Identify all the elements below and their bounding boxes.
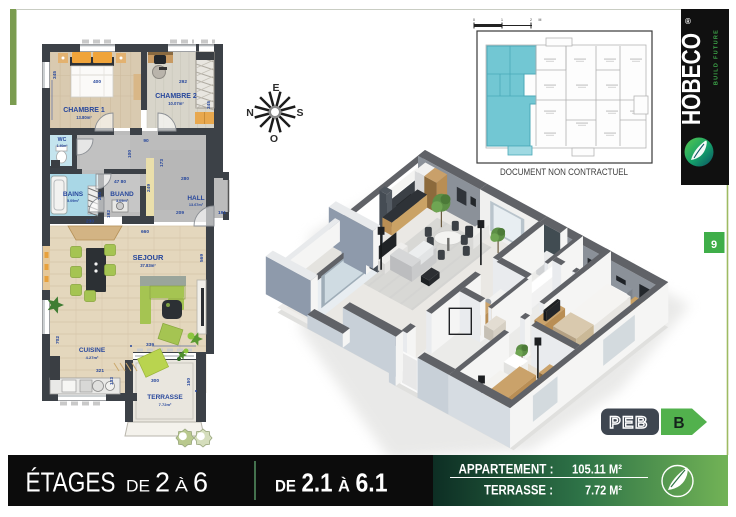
svg-text:TERRASSE :: TERRASSE : <box>484 483 553 498</box>
svg-text:S: S <box>296 107 303 119</box>
svg-text:660: 660 <box>141 229 149 235</box>
svg-text:À: À <box>338 477 350 496</box>
svg-text:À: À <box>175 477 189 496</box>
svg-text:E: E <box>272 82 279 94</box>
svg-text:5.09m²: 5.09m² <box>67 199 80 203</box>
svg-text:2.1: 2.1 <box>302 468 333 498</box>
svg-text:6: 6 <box>193 467 208 498</box>
svg-text:345: 345 <box>206 101 212 109</box>
svg-text:300: 300 <box>151 378 159 384</box>
svg-text:PEB: PEB <box>609 413 648 432</box>
svg-text:HALL: HALL <box>187 195 204 202</box>
svg-text:209: 209 <box>176 210 184 216</box>
svg-text:292: 292 <box>179 79 187 85</box>
svg-text:1: 1 <box>501 18 503 22</box>
svg-text:192: 192 <box>106 210 112 218</box>
svg-text:4.27m²: 4.27m² <box>86 355 99 360</box>
svg-text:BUILD FUTURE: BUILD FUTURE <box>714 29 720 85</box>
svg-text:ÉTAGES: ÉTAGES <box>26 467 116 498</box>
svg-text:13.67m²: 13.67m² <box>189 203 204 207</box>
svg-text:3.09m²: 3.09m² <box>116 199 129 203</box>
svg-text:CHAMBRE 2: CHAMBRE 2 <box>155 93 197 100</box>
svg-text:APPARTEMENT :: APPARTEMENT : <box>459 462 554 477</box>
svg-text:DE: DE <box>126 477 150 496</box>
svg-text:M: M <box>539 18 542 22</box>
svg-text:345: 345 <box>52 71 58 79</box>
svg-text:702: 702 <box>55 336 61 344</box>
svg-text:150: 150 <box>186 378 192 386</box>
svg-text:7.72m²: 7.72m² <box>159 402 172 407</box>
svg-text:105.11 M²: 105.11 M² <box>572 462 623 477</box>
svg-text:100: 100 <box>127 150 133 158</box>
svg-text:133: 133 <box>109 377 115 385</box>
svg-text:230: 230 <box>86 219 94 225</box>
svg-text:CUISINE: CUISINE <box>79 347 106 354</box>
svg-text:249: 249 <box>146 184 152 192</box>
svg-text:235: 235 <box>97 192 103 200</box>
svg-text:37.83m²: 37.83m² <box>140 263 156 268</box>
svg-text:7.72 M²: 7.72 M² <box>585 483 623 498</box>
svg-text:TERRASSE: TERRASSE <box>147 394 183 401</box>
svg-text:DE: DE <box>275 477 296 496</box>
svg-text:10.07m²: 10.07m² <box>168 101 184 106</box>
svg-text:47 80: 47 80 <box>114 179 126 185</box>
svg-text:569: 569 <box>199 254 205 262</box>
svg-text:13.80m²: 13.80m² <box>76 115 92 120</box>
svg-text:280: 280 <box>181 176 189 182</box>
svg-text:BUAND: BUAND <box>110 191 134 198</box>
svg-text:191: 191 <box>218 210 226 216</box>
svg-text:1.40m²: 1.40m² <box>57 144 69 148</box>
svg-text:321: 321 <box>96 368 104 374</box>
svg-text:DOCUMENT NON CONTRACTUEL: DOCUMENT NON CONTRACTUEL <box>500 167 628 177</box>
svg-text:90: 90 <box>143 138 149 144</box>
svg-text:339: 339 <box>146 342 154 348</box>
svg-text:2: 2 <box>155 467 170 498</box>
svg-text:173: 173 <box>159 159 165 167</box>
svg-text:BAINS: BAINS <box>63 191 84 198</box>
svg-text:HOBECO: HOBECO <box>676 33 706 125</box>
svg-text:2: 2 <box>530 18 532 22</box>
svg-text:O: O <box>270 133 278 145</box>
svg-text:0: 0 <box>473 18 475 22</box>
svg-text:CHAMBRE 1: CHAMBRE 1 <box>63 107 105 114</box>
svg-text:®: ® <box>685 17 691 26</box>
svg-text:6.1: 6.1 <box>356 468 388 498</box>
svg-text:SEJOUR: SEJOUR <box>133 253 164 262</box>
svg-text:B: B <box>673 415 684 432</box>
svg-text:WC: WC <box>58 137 67 143</box>
svg-text:400: 400 <box>93 79 101 85</box>
svg-text:N: N <box>246 107 254 119</box>
svg-text:9: 9 <box>711 239 717 251</box>
